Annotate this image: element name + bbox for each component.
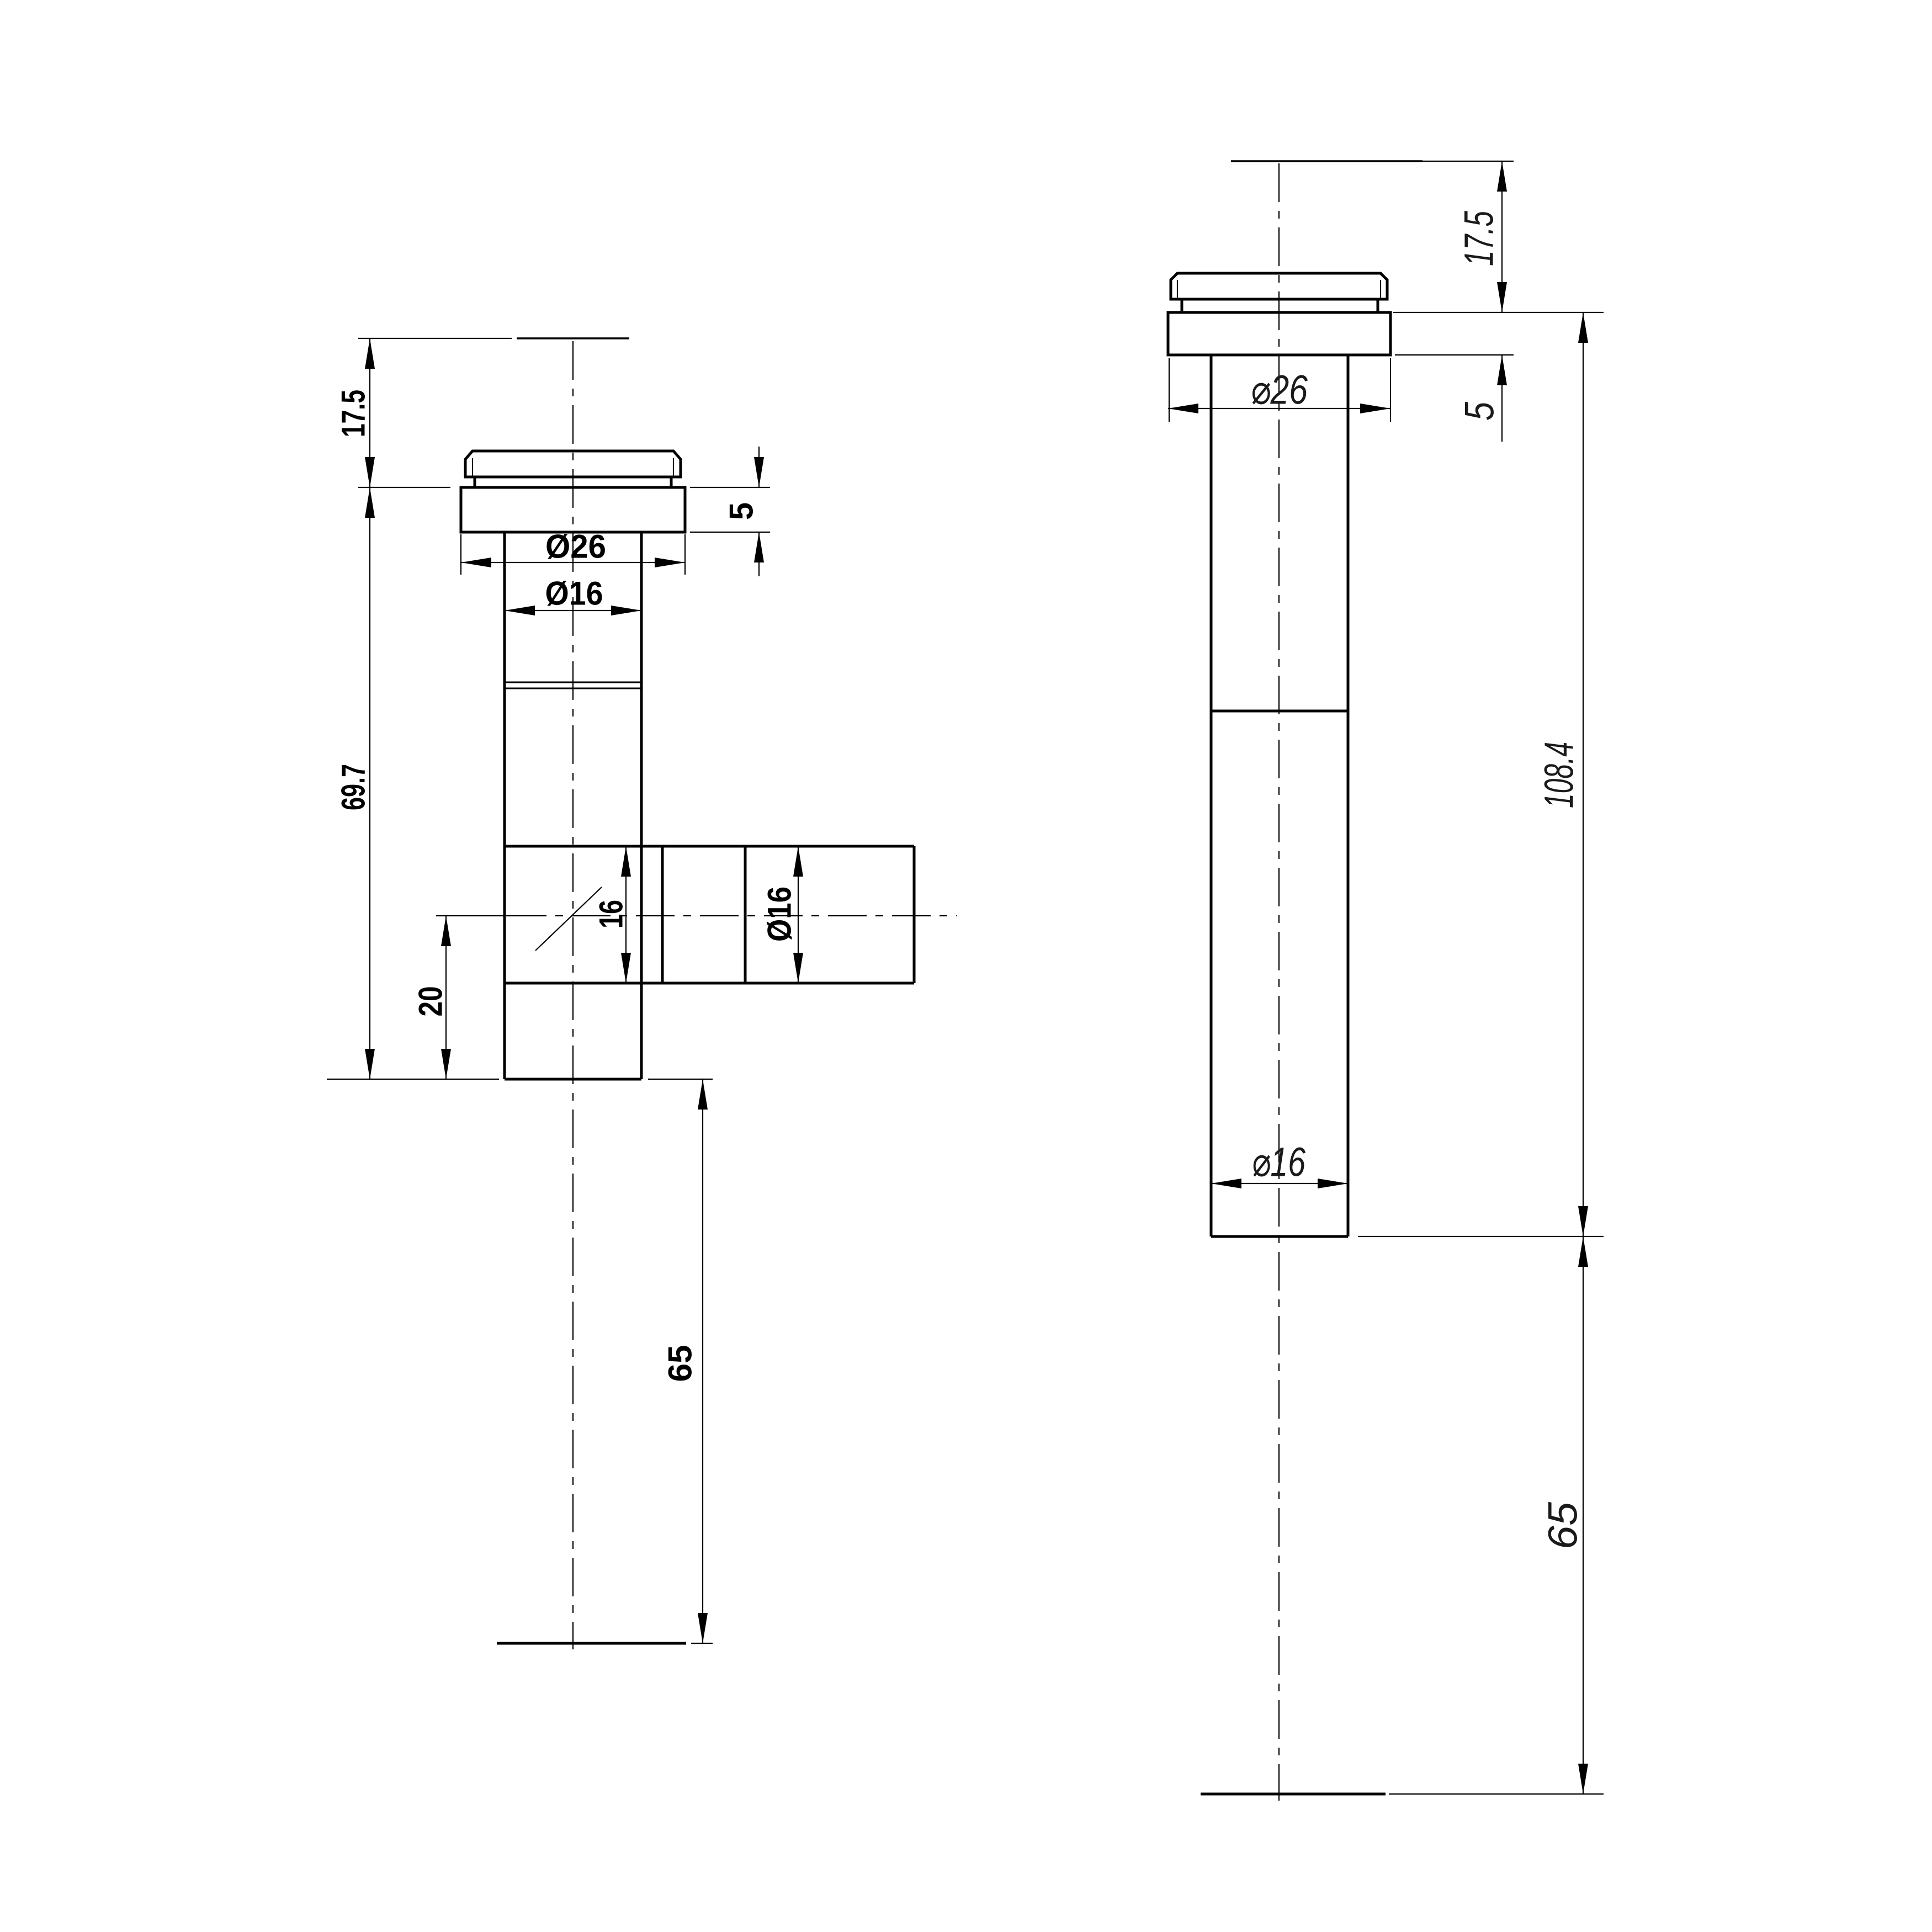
dim-label-front-pipe-dia: Ø16	[545, 575, 603, 612]
front-part-outline	[461, 451, 914, 1643]
dim-label-side-flange-dia: ⌀26	[1250, 367, 1308, 413]
side-thin-lines	[1168, 161, 1604, 1794]
dim-label-front-flange-dia: Ø26	[545, 528, 606, 565]
dim-label-side-total-length: 108.4	[1536, 742, 1582, 808]
front-view: 17.5 69.7 20 65 Ø26 Ø16 5 16 Ø16	[327, 338, 957, 1649]
dim-label-front-branch-square: 16	[593, 900, 630, 928]
dim-label-side-overhang: 17.5	[1456, 210, 1502, 266]
side-view: 17.5 5 ⌀26 108.4 65 ⌀16	[1168, 161, 1604, 1801]
dim-label-front-flange-thickness: 5	[723, 502, 760, 520]
dim-label-side-flange-thickness: 5	[1457, 401, 1503, 421]
dim-label-front-branch-dia: Ø16	[761, 887, 798, 942]
dim-label-front-tail-length: 65	[662, 1345, 699, 1382]
dim-label-front-branch-offset: 20	[412, 986, 449, 1017]
technical-drawing-page: 17.5 69.7 20 65 Ø26 Ø16 5 16 Ø16 17.5 5 …	[0, 0, 1932, 1932]
dim-label-front-body-length: 69.7	[335, 764, 372, 810]
dim-label-side-tail-length: 65	[1540, 1501, 1586, 1549]
side-dimension-arrows	[1168, 161, 1588, 1794]
technical-drawing-canvas: 17.5 69.7 20 65 Ø26 Ø16 5 16 Ø16 17.5 5 …	[0, 0, 1932, 1932]
dim-label-side-pipe-dia: ⌀16	[1251, 1139, 1306, 1185]
dim-label-front-overhang: 17.5	[335, 390, 372, 437]
